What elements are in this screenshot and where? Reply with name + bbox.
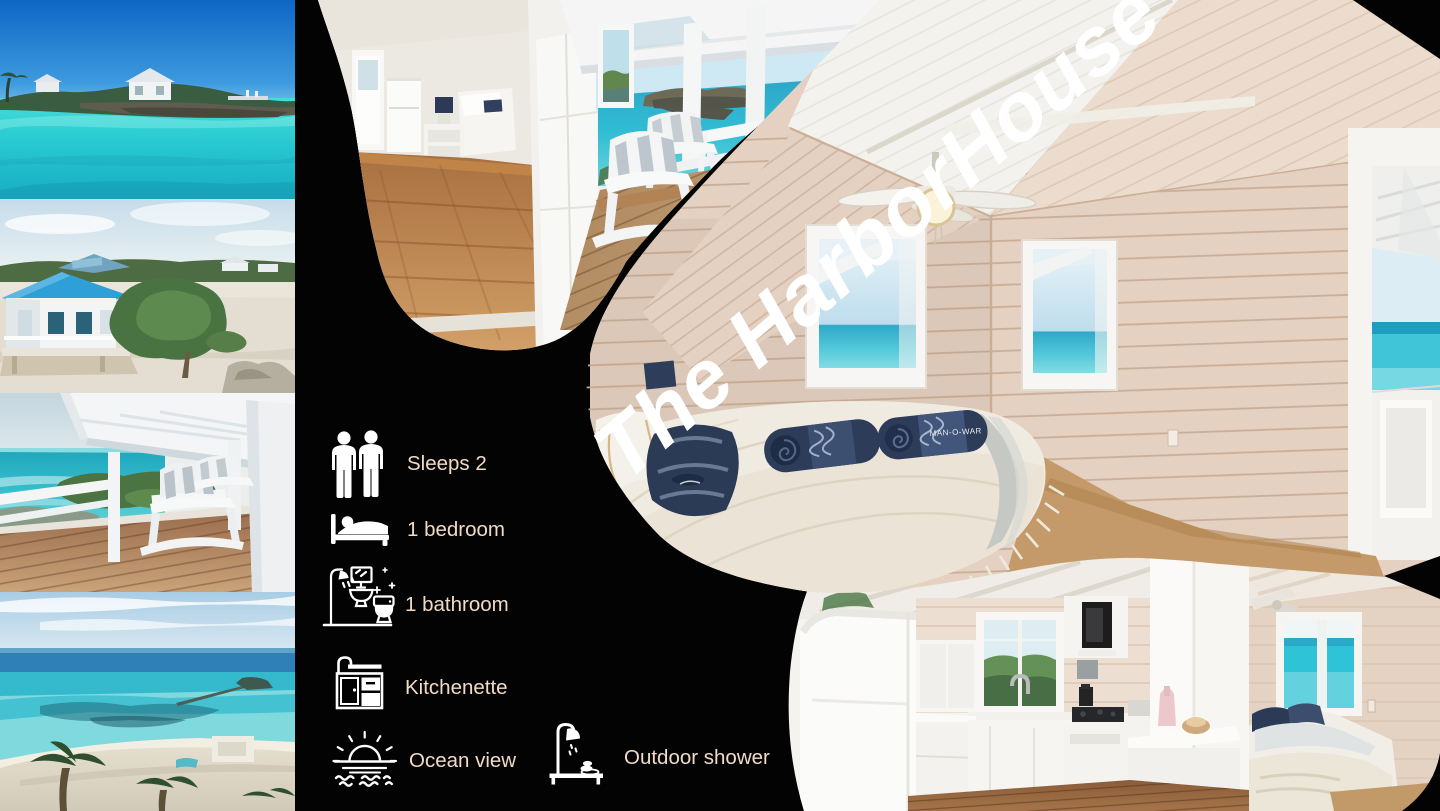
svg-text:Sleeps 2: Sleeps 2: [407, 452, 487, 475]
svg-text:Outdoor shower: Outdoor shower: [624, 746, 770, 769]
svg-text:1 bedroom: 1 bedroom: [407, 518, 505, 541]
svg-text:Ocean view: Ocean view: [409, 749, 516, 772]
svg-text:1 bathroom: 1 bathroom: [405, 593, 509, 616]
svg-text:Kitchenette: Kitchenette: [405, 676, 508, 699]
